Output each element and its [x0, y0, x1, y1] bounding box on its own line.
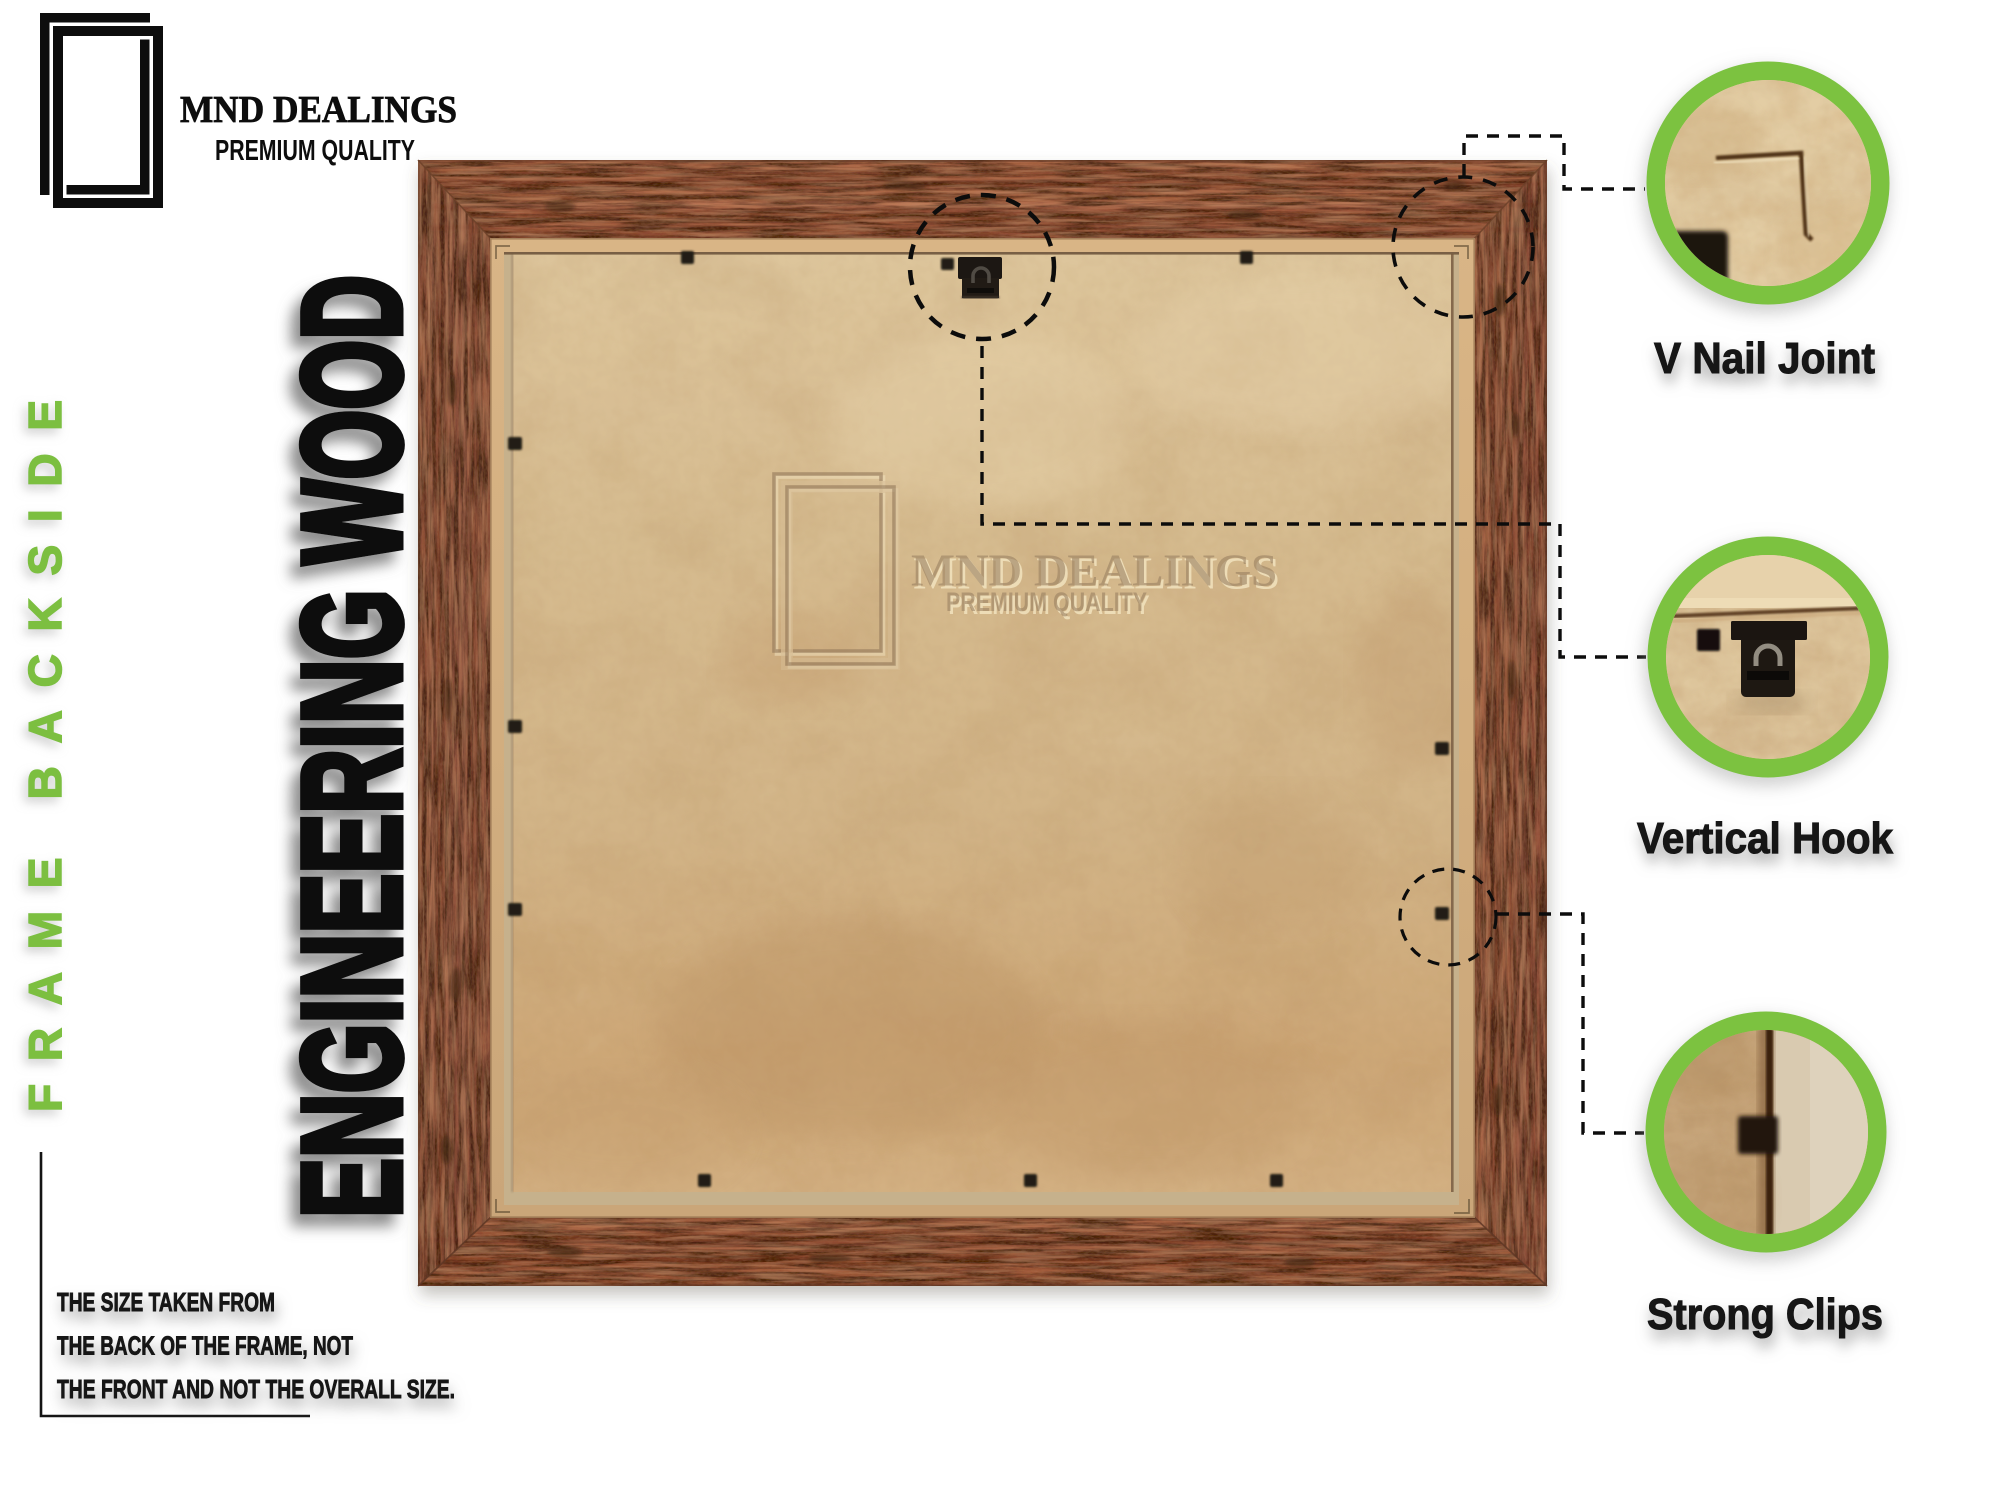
svg-text:THE SIZE TAKEN FROM: THE SIZE TAKEN FROM: [57, 1287, 275, 1317]
svg-text:PREMIUM QUALITY: PREMIUM QUALITY: [215, 135, 415, 167]
svg-text:V Nail Joint: V Nail Joint: [1654, 334, 1875, 383]
svg-text:ENGINEERING WOOD: ENGINEERING WOOD: [273, 275, 430, 1218]
svg-text:THE BACK OF THE FRAME, NOT: THE BACK OF THE FRAME, NOT: [57, 1331, 353, 1361]
svg-text:Vertical Hook: Vertical Hook: [1637, 814, 1893, 863]
svg-text:PREMIUM QUALITY: PREMIUM QUALITY: [946, 587, 1147, 617]
svg-text:THE FRONT AND NOT THE OVERALL: THE FRONT AND NOT THE OVERALL SIZE.: [57, 1374, 455, 1404]
svg-text:MND DEALINGS: MND DEALINGS: [180, 89, 457, 131]
svg-text:Strong Clips: Strong Clips: [1647, 1290, 1883, 1339]
